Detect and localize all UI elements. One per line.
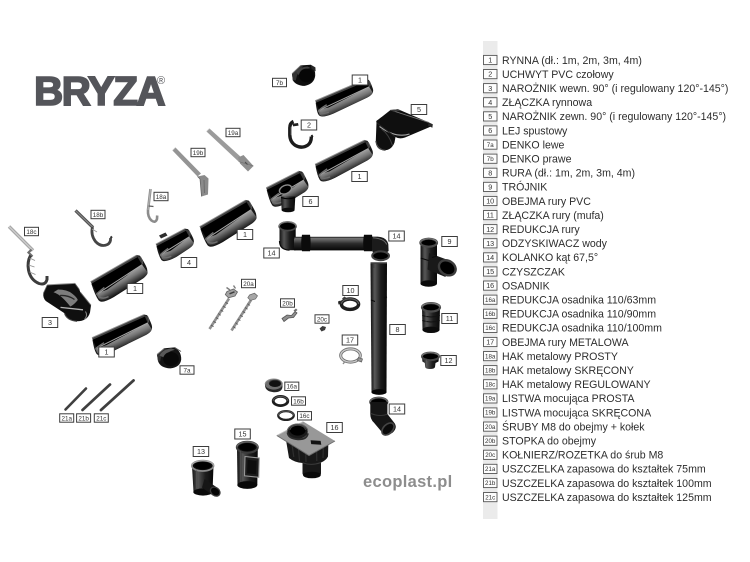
svg-text:1: 1 xyxy=(105,348,109,357)
svg-text:HAK metalowy PROSTY: HAK metalowy PROSTY xyxy=(502,351,618,363)
svg-text:5: 5 xyxy=(488,112,492,121)
svg-text:ZŁĄCZKA rynnowa: ZŁĄCZKA rynnowa xyxy=(502,97,592,109)
svg-text:15: 15 xyxy=(239,430,247,439)
svg-text:20c: 20c xyxy=(485,452,495,459)
svg-text:RYNNA (dł.: 1m, 2m, 3m, 4m): RYNNA (dł.: 1m, 2m, 3m, 4m) xyxy=(502,55,642,67)
svg-text:20a: 20a xyxy=(485,424,496,431)
svg-text:USZCZELKA zapasowa do kształte: USZCZELKA zapasowa do kształtek 75mm xyxy=(502,464,706,476)
svg-text:LEJ spustowy: LEJ spustowy xyxy=(502,125,568,137)
svg-text:1: 1 xyxy=(133,284,137,293)
svg-text:14: 14 xyxy=(393,232,401,241)
svg-text:LISTWA mocująca SKRĘCONA: LISTWA mocująca SKRĘCONA xyxy=(502,407,652,419)
svg-text:21a: 21a xyxy=(61,415,72,422)
svg-text:3: 3 xyxy=(48,318,52,327)
svg-text:USZCZELKA zapasowa do kształte: USZCZELKA zapasowa do kształtek 100mm xyxy=(502,478,712,490)
svg-text:19b: 19b xyxy=(485,410,496,417)
svg-text:17: 17 xyxy=(346,336,354,345)
svg-text:6: 6 xyxy=(488,126,492,135)
svg-text:21a: 21a xyxy=(485,466,496,473)
svg-text:12: 12 xyxy=(486,225,494,234)
svg-text:REDUKCJA rury: REDUKCJA rury xyxy=(502,224,580,236)
svg-text:16b: 16b xyxy=(293,398,304,405)
svg-text:9: 9 xyxy=(488,183,492,192)
svg-text:18a: 18a xyxy=(485,353,496,360)
svg-text:11: 11 xyxy=(486,211,493,220)
svg-text:18c: 18c xyxy=(485,382,495,389)
svg-text:1: 1 xyxy=(358,76,362,85)
svg-text:ODZYSKIWACZ wody: ODZYSKIWACZ wody xyxy=(502,238,608,250)
svg-text:KOŁNIERZ/ROZETKA do śrub M8: KOŁNIERZ/ROZETKA do śrub M8 xyxy=(502,450,663,462)
svg-text:®: ® xyxy=(157,75,165,87)
svg-text:KOLANKO kąt 67,5°: KOLANKO kąt 67,5° xyxy=(502,252,598,264)
svg-text:4: 4 xyxy=(187,258,191,267)
svg-text:10: 10 xyxy=(347,286,355,295)
svg-text:USZCZELKA zapasowa do kształte: USZCZELKA zapasowa do kształtek 125mm xyxy=(502,492,712,504)
svg-text:21c: 21c xyxy=(96,415,106,422)
svg-text:STOPKA do obejmy: STOPKA do obejmy xyxy=(502,436,597,448)
svg-text:1: 1 xyxy=(488,56,492,65)
svg-text:3: 3 xyxy=(488,84,492,93)
svg-text:ZŁĄCZKA rury (mufa): ZŁĄCZKA rury (mufa) xyxy=(502,210,604,222)
svg-text:16: 16 xyxy=(486,281,494,290)
svg-text:12: 12 xyxy=(445,356,453,365)
svg-text:HAK metalowy REGULOWANY: HAK metalowy REGULOWANY xyxy=(502,379,651,391)
svg-text:OSADNIK: OSADNIK xyxy=(502,280,550,292)
svg-text:16: 16 xyxy=(331,423,339,432)
svg-text:REDUKCJA osadnika 110/100mm: REDUKCJA osadnika 110/100mm xyxy=(502,323,662,335)
svg-text:19a: 19a xyxy=(485,396,496,403)
svg-text:19a: 19a xyxy=(228,130,239,137)
svg-text:HAK metalowy SKRĘCONY: HAK metalowy SKRĘCONY xyxy=(502,365,634,377)
svg-text:13: 13 xyxy=(197,447,205,456)
svg-text:16c: 16c xyxy=(485,325,495,332)
svg-text:7a: 7a xyxy=(487,142,494,149)
svg-text:RURA (dł.: 1m, 2m, 3m, 4m): RURA (dł.: 1m, 2m, 3m, 4m) xyxy=(502,168,635,180)
svg-text:20b: 20b xyxy=(485,438,496,445)
svg-text:16c: 16c xyxy=(299,413,309,420)
svg-text:17: 17 xyxy=(486,338,494,347)
svg-text:7b: 7b xyxy=(276,80,284,87)
svg-text:LISTWA mocująca PROSTA: LISTWA mocująca PROSTA xyxy=(502,393,635,405)
svg-text:UCHWYT PVC czołowy: UCHWYT PVC czołowy xyxy=(502,69,614,81)
svg-text:TRÓJNIK: TRÓJNIK xyxy=(502,181,547,194)
svg-text:13: 13 xyxy=(486,239,494,248)
svg-text:CZYSZCZAK: CZYSZCZAK xyxy=(502,266,565,278)
svg-text:15: 15 xyxy=(486,267,494,276)
svg-text:7b: 7b xyxy=(487,156,494,163)
svg-text:NAROŻNIK wewn. 90° (i regulowa: NAROŻNIK wewn. 90° (i regulowany 120°-14… xyxy=(502,82,728,95)
svg-text:18b: 18b xyxy=(485,367,496,374)
svg-text:ecoplast.pl: ecoplast.pl xyxy=(363,473,453,491)
svg-text:18b: 18b xyxy=(93,212,104,219)
svg-text:OBEJMA rury METALOWA: OBEJMA rury METALOWA xyxy=(502,337,629,349)
svg-text:DENKO lewe: DENKO lewe xyxy=(502,139,565,151)
svg-text:REDUKCJA osadnika 110/63mm: REDUKCJA osadnika 110/63mm xyxy=(502,295,656,307)
svg-text:ŚRUBY M8 do obejmy + kołek: ŚRUBY M8 do obejmy + kołek xyxy=(502,420,645,433)
svg-text:4: 4 xyxy=(488,98,492,107)
svg-text:16a: 16a xyxy=(287,384,298,391)
svg-text:9: 9 xyxy=(448,237,452,246)
svg-text:20c: 20c xyxy=(317,316,327,323)
svg-text:6: 6 xyxy=(309,197,313,206)
svg-text:11: 11 xyxy=(446,314,453,323)
svg-text:10: 10 xyxy=(486,197,494,206)
svg-text:18a: 18a xyxy=(156,194,167,201)
svg-text:14: 14 xyxy=(268,249,276,258)
svg-text:21c: 21c xyxy=(485,494,495,501)
svg-text:1: 1 xyxy=(243,230,247,239)
svg-text:19b: 19b xyxy=(193,150,204,157)
svg-text:2: 2 xyxy=(307,121,311,130)
svg-text:1: 1 xyxy=(358,172,362,181)
svg-text:21b: 21b xyxy=(78,415,89,422)
svg-text:7a: 7a xyxy=(183,367,191,374)
svg-text:20a: 20a xyxy=(243,281,254,288)
svg-text:REDUKCJA osadnika 110/90mm: REDUKCJA osadnika 110/90mm xyxy=(502,309,656,321)
svg-text:14: 14 xyxy=(393,405,401,414)
svg-text:18c: 18c xyxy=(26,229,36,236)
svg-text:OBEJMA rury PVC: OBEJMA rury PVC xyxy=(502,196,591,208)
svg-text:16a: 16a xyxy=(485,297,496,304)
svg-text:BRYZA: BRYZA xyxy=(34,68,165,114)
svg-text:DENKO prawe: DENKO prawe xyxy=(502,154,572,166)
svg-text:NAROŻNIK zewn. 90° (i regulowa: NAROŻNIK zewn. 90° (i regulowany 120°-14… xyxy=(502,110,726,123)
svg-text:5: 5 xyxy=(417,105,421,114)
svg-text:21b: 21b xyxy=(485,480,496,487)
svg-text:14: 14 xyxy=(486,253,494,262)
svg-text:8: 8 xyxy=(396,325,400,334)
svg-text:16b: 16b xyxy=(485,311,496,318)
svg-text:2: 2 xyxy=(488,70,492,79)
svg-text:20b: 20b xyxy=(282,300,293,307)
svg-text:8: 8 xyxy=(488,168,492,177)
